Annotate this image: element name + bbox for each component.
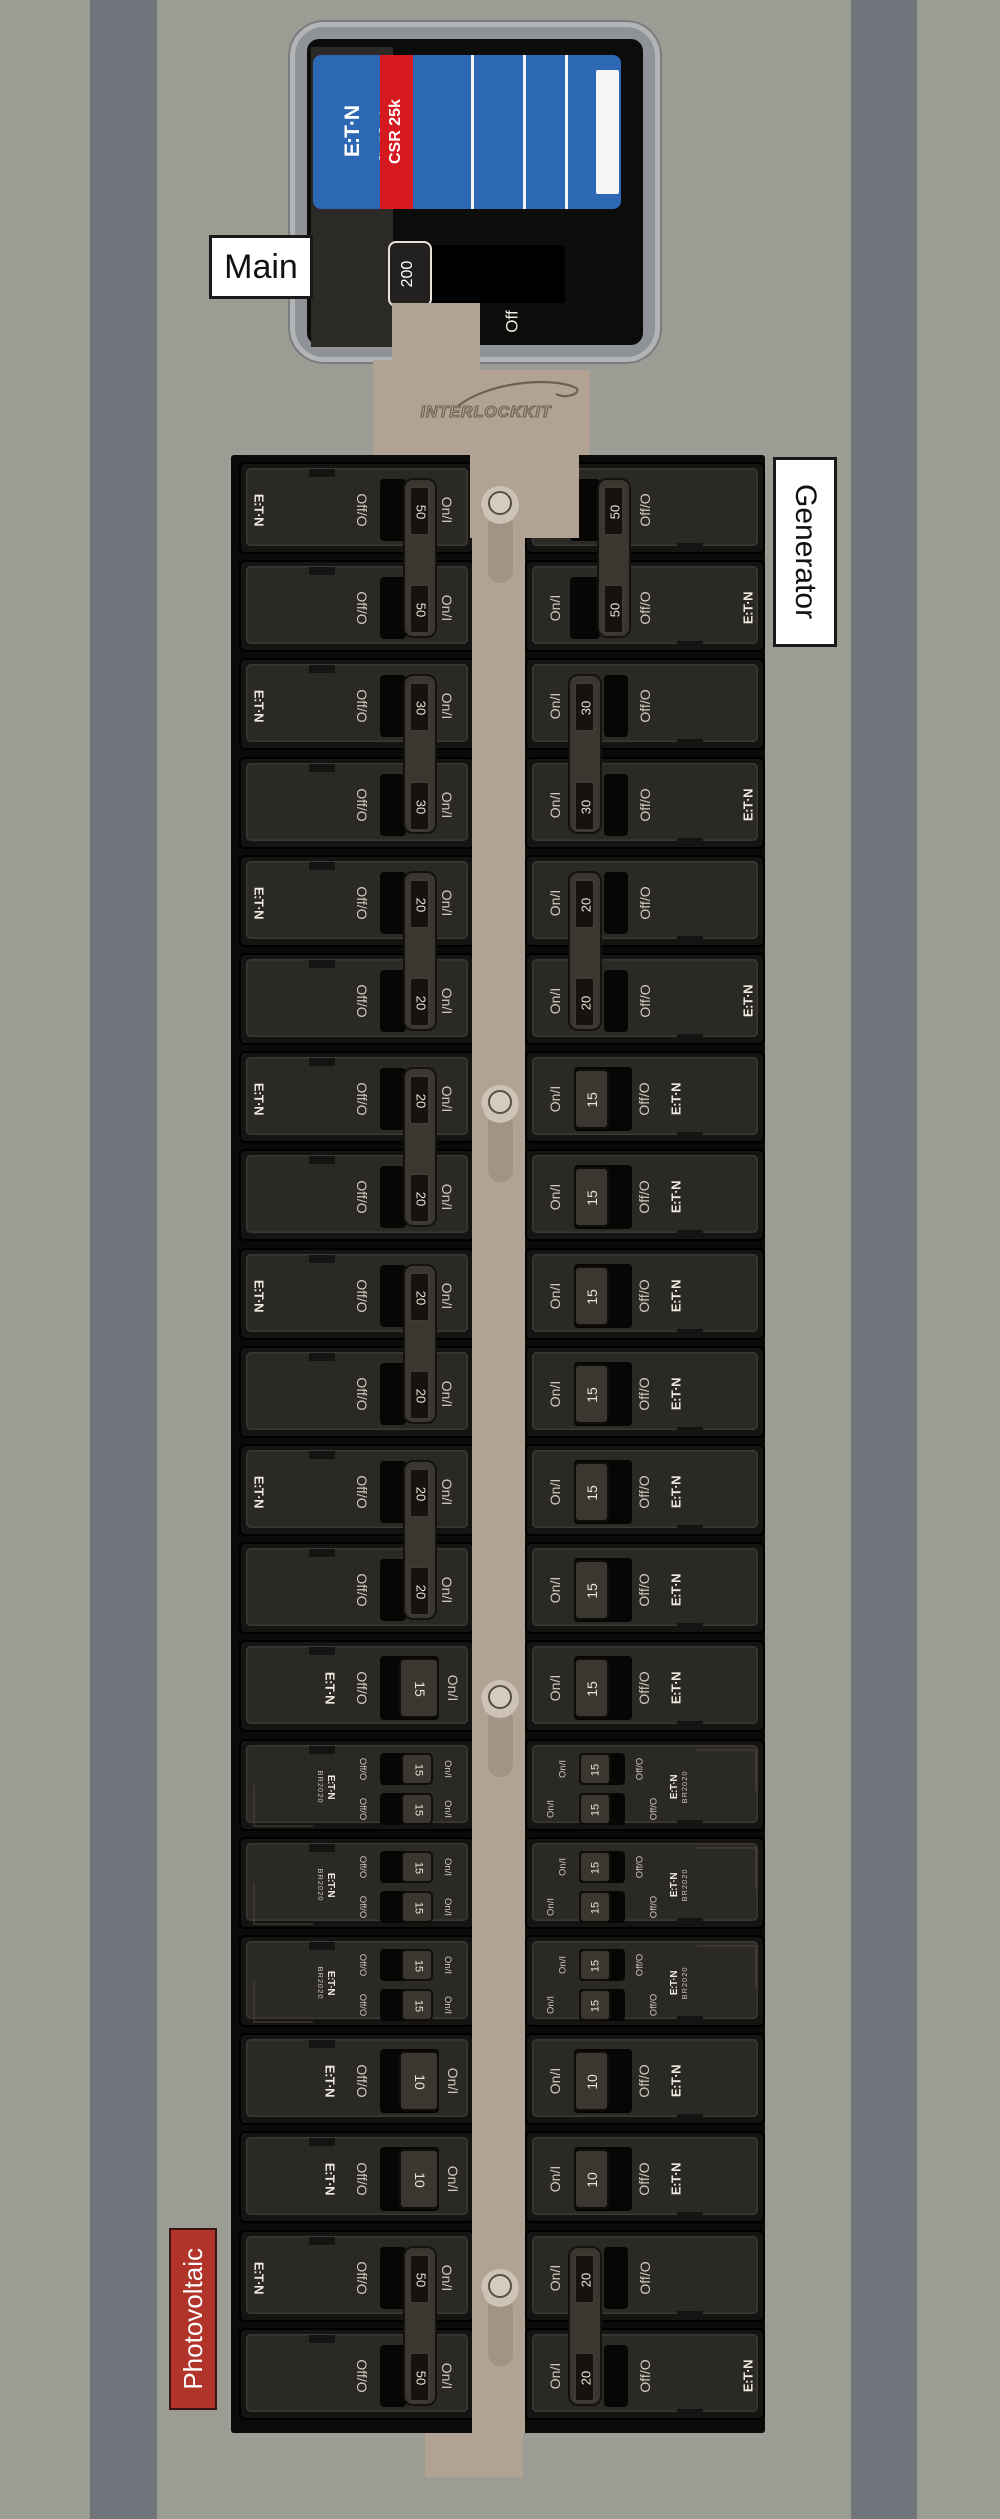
breaker-right-8: On/I15Off/OE:T·N (525, 1149, 765, 1241)
mold-notch (677, 2212, 703, 2220)
amp-window[interactable]: 30 (409, 682, 430, 732)
breaker-handle[interactable]: 15 (574, 1167, 609, 1227)
interlock-slide-strip[interactable] (472, 455, 525, 2433)
brand-logo: E:T·NBR2020 (670, 1868, 688, 1901)
off-label: Off/O (649, 1994, 659, 2017)
off-label: Off/O (638, 690, 652, 723)
amp-label: 10 (585, 2074, 599, 2090)
amp-window[interactable]: 30 (574, 682, 595, 732)
breaker-handle[interactable]: 15 (401, 1793, 433, 1825)
amp-label: 50 (415, 2272, 428, 2286)
main-amp-window[interactable]: 200 (388, 241, 432, 307)
off-label: Off/O (637, 1377, 651, 1410)
breaker-left-16: Off/O15On/IOff/O15On/IE:T·NBR2020 (239, 1935, 475, 2027)
breaker-right-5: On/IOff/O (525, 855, 765, 947)
breaker-handle[interactable]: 15 (399, 1658, 439, 1718)
main-model-label: CSR 25k (388, 100, 404, 164)
mold-step-line (697, 1847, 757, 1889)
on-label: On/I (440, 1282, 454, 1308)
breaker-handle[interactable]: 15 (579, 1753, 611, 1785)
breaker-right-15: On/I15Off/OOn/I15Off/OE:T·NBR2020 (525, 1837, 765, 1929)
off-label: Off/O (638, 886, 652, 919)
breaker-left-8: Off/OOn/I (239, 1149, 475, 1241)
main-spec-label: E:T·N Circuit Breaker CSR 25k (313, 55, 621, 209)
breaker-left-11: E:T·NOff/OOn/I (239, 1444, 475, 1536)
amp-window[interactable]: 30 (409, 781, 430, 831)
on-label: On/I (442, 1996, 452, 2014)
photovoltaic-sticker: Photovoltaic (169, 2228, 217, 2410)
breaker-handle[interactable]: 15 (574, 1462, 609, 1522)
on-label: On/I (446, 1675, 460, 1701)
amp-label: 15 (413, 1902, 424, 1914)
on-label: On/I (440, 1184, 454, 1210)
amp-window[interactable]: 50 (603, 486, 624, 536)
handle-slot[interactable] (604, 675, 628, 737)
off-label: Off/O (355, 1181, 369, 1214)
off-label: Off/O (355, 493, 369, 526)
on-label: On/I (548, 890, 562, 916)
mold-notch (309, 2040, 335, 2048)
brand-logo: E:T·N (670, 1574, 683, 1606)
off-label: Off/O (638, 984, 652, 1017)
breaker-right-2: On/IOff/OE:T·N (525, 560, 765, 652)
amp-label: 15 (591, 1902, 602, 1914)
mold-step-line (253, 1785, 313, 1827)
amp-label: 10 (413, 2074, 427, 2090)
on-label: On/I (546, 1898, 556, 1916)
brand-logo: E:T·N (670, 1476, 683, 1508)
off-label: Off/O (637, 1672, 651, 1705)
brand-logo: E:T·N (324, 1672, 337, 1704)
on-label: On/I (548, 988, 562, 1014)
breaker-handle[interactable]: 10 (399, 2051, 439, 2111)
on-label: On/I (442, 1898, 452, 1916)
brand-logo: E:T·N (742, 592, 755, 624)
breaker-right-4: On/IOff/OE:T·N (525, 757, 765, 849)
spec-divider-line (523, 55, 526, 209)
mold-notch (677, 1918, 703, 1926)
on-label: On/I (440, 497, 454, 523)
breaker-handle[interactable]: 15 (574, 1069, 609, 1129)
mold-notch (309, 1451, 335, 1459)
off-label: Off/O (637, 1475, 651, 1508)
amp-label: 30 (415, 701, 428, 715)
off-label: Off/O (355, 2163, 369, 2196)
mold-notch (677, 543, 703, 551)
breaker-right-18: On/I10Off/OE:T·N (525, 2131, 765, 2223)
handle-slot[interactable] (570, 577, 600, 639)
amp-label: 15 (591, 2000, 602, 2012)
mold-notch (309, 2237, 335, 2245)
breaker-right-14: On/I15Off/OOn/I15Off/OE:T·NBR2020 (525, 1739, 765, 1831)
amp-label: 20 (580, 996, 593, 1010)
screw-head (488, 1090, 512, 1114)
handle-slot[interactable] (604, 2247, 628, 2309)
brand-logo: E:T·N (670, 1181, 683, 1213)
amp-window[interactable]: 20 (409, 1566, 430, 1616)
mold-notch (309, 1255, 335, 1263)
mold-step-line (253, 1883, 313, 1925)
amp-label: 20 (415, 1585, 428, 1599)
amp-label: 10 (585, 2173, 599, 2189)
amp-window[interactable]: 20 (409, 1370, 430, 1420)
mold-notch (677, 2409, 703, 2417)
off-label: Off/O (355, 1279, 369, 1312)
breaker-left-18: E:T·NOff/O10On/I (239, 2131, 475, 2223)
brand-logo: E:T·N (670, 1672, 683, 1704)
breaker-right-17: On/I10Off/OE:T·N (525, 2033, 765, 2125)
off-label: Off/O (638, 493, 652, 526)
on-label: On/I (440, 595, 454, 621)
amp-label: 15 (585, 1289, 599, 1305)
amp-window[interactable]: 20 (574, 2254, 595, 2304)
amp-window[interactable]: 20 (409, 977, 430, 1027)
brand-logo: E:T·N (253, 1476, 266, 1508)
on-label: On/I (548, 2166, 562, 2192)
brand-logo: E:T·NBR2020 (670, 1770, 688, 1803)
brand-logo: E:T·NBR2020 (317, 1966, 335, 1999)
handle-slot[interactable] (604, 774, 628, 836)
mold-notch (677, 1820, 703, 1828)
on-label: On/I (440, 1381, 454, 1407)
handle-slot[interactable] (604, 872, 628, 934)
main-off-label: Off (504, 310, 521, 332)
amp-window[interactable]: 50 (409, 2254, 430, 2304)
handle-slot[interactable] (604, 2345, 628, 2407)
brand-logo: E:T·N (324, 2163, 337, 2195)
screw-head (488, 491, 512, 515)
breaker-right-10: On/I15Off/OE:T·N (525, 1346, 765, 1438)
mold-notch (677, 1132, 703, 1140)
on-label: On/I (548, 1381, 562, 1407)
brand-logo: E:T·N (324, 2065, 337, 2097)
brand-logo: E:T·N (253, 690, 266, 722)
on-label: On/I (440, 1577, 454, 1603)
amp-label: 20 (415, 898, 428, 912)
on-label: On/I (548, 2363, 562, 2389)
brand-logo: E:T·NBR2020 (317, 1770, 335, 1803)
breaker-left-5: E:T·NOff/OOn/I (239, 855, 475, 947)
breaker-left-7: E:T·NOff/OOn/I (239, 1051, 475, 1143)
off-label: Off/O (638, 592, 652, 625)
off-label: Off/O (637, 2065, 651, 2098)
amp-label: 15 (585, 1583, 599, 1599)
screw-head (488, 2274, 512, 2298)
brand-logo: E:T·NBR2020 (670, 1966, 688, 1999)
mold-notch (309, 567, 335, 575)
mold-notch (677, 838, 703, 846)
breaker-handle[interactable]: 10 (574, 2051, 609, 2111)
on-label: On/I (442, 1800, 452, 1818)
off-label: Off/O (357, 1856, 367, 1879)
main-sticker-text: Main (224, 248, 298, 287)
breaker-right-11: On/I15Off/OE:T·N (525, 1444, 765, 1536)
amp-label: 15 (413, 1763, 424, 1775)
breaker-handle[interactable]: 15 (401, 1851, 433, 1883)
wall-stud-stripe-right (851, 0, 917, 2519)
on-label: On/I (548, 1675, 562, 1701)
breaker-handle[interactable]: 15 (579, 1891, 611, 1923)
amp-window[interactable]: 50 (603, 584, 624, 634)
mold-notch (309, 1942, 335, 1950)
breaker-left-14: Off/O15On/IOff/O15On/IE:T·NBR2020 (239, 1739, 475, 1831)
amp-label: 20 (415, 1192, 428, 1206)
amp-label: 20 (580, 2272, 593, 2286)
on-label: On/I (440, 1479, 454, 1505)
off-label: Off/O (638, 788, 652, 821)
amp-label: 15 (585, 1682, 599, 1698)
amp-window[interactable]: 30 (574, 781, 595, 831)
breaker-left-12: Off/OOn/I (239, 1542, 475, 1634)
mold-notch (309, 1549, 335, 1557)
on-label: On/I (440, 890, 454, 916)
off-label: Off/O (357, 1896, 367, 1919)
breaker-handle[interactable]: 15 (401, 1989, 433, 2021)
main-amp-label: 200 (400, 254, 416, 294)
mold-notch (309, 1844, 335, 1852)
breaker-left-17: E:T·NOff/O10On/I (239, 2033, 475, 2125)
off-label: Off/O (637, 1181, 651, 1214)
off-label: Off/O (357, 1797, 367, 1820)
breaker-right-9: On/I15Off/OE:T·N (525, 1248, 765, 1340)
breaker-right-20: On/IOff/OE:T·N (525, 2328, 765, 2420)
off-label: Off/O (638, 2359, 652, 2392)
off-label: Off/O (357, 1757, 367, 1780)
off-label: Off/O (355, 690, 369, 723)
on-label: On/I (546, 1996, 556, 2014)
mold-notch (309, 1647, 335, 1655)
wall-background: E:T·N Circuit Breaker CSR 25k 200 Off Ma… (0, 0, 1000, 2519)
brand-logo: E:T·N (253, 2262, 266, 2294)
amp-window[interactable]: 50 (409, 584, 430, 634)
breaker-left-4: Off/OOn/I (239, 757, 475, 849)
interlock-swoosh-icon (440, 376, 590, 410)
breaker-left-15: Off/O15On/IOff/O15On/IE:T·NBR2020 (239, 1837, 475, 1929)
spec-divider-line (565, 55, 568, 209)
breaker-handle[interactable]: 10 (574, 2149, 609, 2209)
breaker-right-6: On/IOff/OE:T·N (525, 953, 765, 1045)
breaker-handle[interactable]: 15 (401, 1949, 433, 1981)
mold-notch (677, 1329, 703, 1337)
amp-label: 20 (415, 1389, 428, 1403)
amp-label: 15 (591, 1960, 602, 1972)
on-label: On/I (548, 595, 562, 621)
amp-label: 15 (413, 1682, 427, 1698)
breaker-left-10: Off/OOn/I (239, 1346, 475, 1438)
on-label: On/I (548, 1479, 562, 1505)
main-handle-bar[interactable] (429, 245, 565, 303)
mold-notch (677, 1034, 703, 1042)
brand-logo: E:T·N (253, 887, 266, 919)
mold-notch (309, 1156, 335, 1164)
breaker-handle[interactable]: 15 (579, 1989, 611, 2021)
breaker-right-12: On/I15Off/OE:T·N (525, 1542, 765, 1634)
off-label: Off/O (355, 886, 369, 919)
off-label: Off/O (355, 1377, 369, 1410)
breaker-right-7: On/I15Off/OE:T·N (525, 1051, 765, 1143)
breaker-left-3: E:T·NOff/OOn/I (239, 658, 475, 750)
mold-notch (677, 641, 703, 649)
mold-notch (677, 1525, 703, 1533)
breaker-left-6: Off/OOn/I (239, 953, 475, 1045)
off-label: Off/O (355, 2359, 369, 2392)
mold-step-line (253, 1981, 313, 2023)
amp-label: 20 (415, 1094, 428, 1108)
breaker-handle[interactable]: 15 (401, 1753, 433, 1785)
on-label: On/I (440, 693, 454, 719)
wall-stud-stripe-left (90, 0, 157, 2519)
off-label: Off/O (635, 1757, 645, 1780)
on-label: On/I (558, 1858, 568, 1876)
breaker-handle[interactable]: 10 (399, 2149, 439, 2209)
generator-sticker-text: Generator (788, 484, 822, 619)
on-label: On/I (558, 1956, 568, 1974)
mold-notch (309, 1058, 335, 1066)
off-label: Off/O (355, 1574, 369, 1607)
brand-logo: E:T·N (670, 1378, 683, 1410)
off-label: Off/O (637, 2163, 651, 2196)
breaker-handle[interactable]: 15 (574, 1266, 609, 1326)
amp-window[interactable]: 50 (409, 2352, 430, 2402)
on-label: On/I (558, 1760, 568, 1778)
amp-label: 15 (413, 1862, 424, 1874)
on-label: On/I (446, 2068, 460, 2094)
amp-label: 15 (591, 1763, 602, 1775)
off-label: Off/O (355, 1475, 369, 1508)
amp-label: 15 (413, 1960, 424, 1972)
off-label: Off/O (649, 1797, 659, 1820)
amp-label: 15 (585, 1387, 599, 1403)
mold-notch (677, 1623, 703, 1631)
brand-logo: E:T·NBR2020 (317, 1868, 335, 1901)
amp-label: 10 (413, 2173, 427, 2189)
amp-label: 50 (415, 2371, 428, 2385)
on-label: On/I (442, 1956, 452, 1974)
mold-notch (309, 2138, 335, 2146)
breaker-right-3: On/IOff/O (525, 658, 765, 750)
breaker-handle[interactable]: 15 (579, 1793, 611, 1825)
amp-label: 20 (580, 2371, 593, 2385)
off-label: Off/O (637, 1083, 651, 1116)
mold-notch (309, 1353, 335, 1361)
mold-notch (677, 2016, 703, 2024)
amp-window[interactable]: 20 (409, 1173, 430, 1223)
on-label: On/I (546, 1800, 556, 1818)
eaton-logo: E:T·N (342, 106, 363, 157)
mold-step-line (697, 1945, 757, 1987)
amp-window[interactable]: 20 (574, 879, 595, 929)
breaker-handle[interactable]: 15 (579, 1851, 611, 1883)
amp-label: 50 (415, 603, 428, 617)
off-label: Off/O (638, 2261, 652, 2294)
amp-label: 15 (413, 1803, 424, 1815)
breaker-left-1: E:T·NOff/OOn/I (239, 462, 475, 554)
brand-logo: E:T·N (253, 1280, 266, 1312)
on-label: On/I (442, 1760, 452, 1778)
breaker-left-19: E:T·NOff/OOn/I (239, 2230, 475, 2322)
breaker-left-20: Off/OOn/I (239, 2328, 475, 2420)
brand-logo: E:T·N (670, 2163, 683, 2195)
off-label: Off/O (635, 1954, 645, 1977)
amp-window[interactable]: 50 (409, 486, 430, 536)
on-label: On/I (446, 2166, 460, 2192)
off-label: Off/O (355, 1083, 369, 1116)
amp-window[interactable]: 20 (409, 1468, 430, 1518)
breaker-right-13: On/I15Off/OE:T·N (525, 1640, 765, 1732)
amp-window[interactable]: 20 (409, 879, 430, 929)
spec-divider-line (471, 55, 474, 209)
off-label: Off/O (635, 1856, 645, 1879)
mold-notch (309, 1746, 335, 1754)
breaker-handle[interactable]: 15 (574, 1658, 609, 1718)
on-label: On/I (548, 2264, 562, 2290)
off-label: Off/O (355, 592, 369, 625)
brand-logo: E:T·N (742, 985, 755, 1017)
amp-label: 15 (591, 1862, 602, 1874)
on-label: On/I (548, 2068, 562, 2094)
main-sticker: Main (209, 235, 313, 299)
off-label: Off/O (355, 788, 369, 821)
mold-notch (309, 862, 335, 870)
on-label: On/I (440, 988, 454, 1014)
amp-label: 30 (415, 799, 428, 813)
on-label: On/I (442, 1858, 452, 1876)
breaker-left-2: Off/OOn/I (239, 560, 475, 652)
brand-logo: E:T·N (670, 2065, 683, 2097)
on-label: On/I (548, 1577, 562, 1603)
amp-window[interactable]: 20 (409, 1075, 430, 1125)
breaker-left-13: E:T·NOff/O15On/I (239, 1640, 475, 1732)
off-label: Off/O (357, 1954, 367, 1977)
brand-logo: E:T·N (253, 494, 266, 526)
interlock-bracket-foot[interactable] (425, 2433, 523, 2477)
amp-window[interactable]: 20 (409, 1272, 430, 1322)
mold-notch (677, 1427, 703, 1435)
breaker-handle[interactable]: 15 (401, 1891, 433, 1923)
amp-window[interactable]: 20 (574, 977, 595, 1027)
mold-notch (309, 2335, 335, 2343)
amp-label: 50 (609, 505, 622, 519)
breaker-right-16: On/I15Off/OOn/I15Off/OE:T·NBR2020 (525, 1935, 765, 2027)
amp-label: 30 (580, 701, 593, 715)
photovoltaic-sticker-text: Photovoltaic (178, 2248, 209, 2390)
brand-logo: E:T·N (742, 789, 755, 821)
off-label: Off/O (355, 2065, 369, 2098)
breaker-handle[interactable]: 15 (579, 1949, 611, 1981)
screw-head (488, 1685, 512, 1709)
breaker-handle[interactable]: 15 (574, 1560, 609, 1620)
mold-notch (309, 960, 335, 968)
amp-label: 30 (580, 799, 593, 813)
mold-notch (309, 764, 335, 772)
on-label: On/I (548, 1184, 562, 1210)
main-model-stripe: CSR 25k (380, 55, 413, 209)
amp-window[interactable]: 20 (574, 2352, 595, 2402)
mold-notch (309, 665, 335, 673)
handle-slot[interactable] (604, 970, 628, 1032)
breaker-handle[interactable]: 15 (574, 1364, 609, 1424)
brand-logo: E:T·N (253, 1083, 266, 1115)
mold-notch (309, 469, 335, 477)
on-label: On/I (440, 1086, 454, 1112)
off-label: Off/O (355, 984, 369, 1017)
mold-notch (677, 739, 703, 747)
generator-sticker: Generator (773, 457, 837, 647)
mold-notch (677, 2311, 703, 2319)
amp-label: 20 (580, 898, 593, 912)
amp-label: 50 (415, 505, 428, 519)
on-label: On/I (440, 2264, 454, 2290)
